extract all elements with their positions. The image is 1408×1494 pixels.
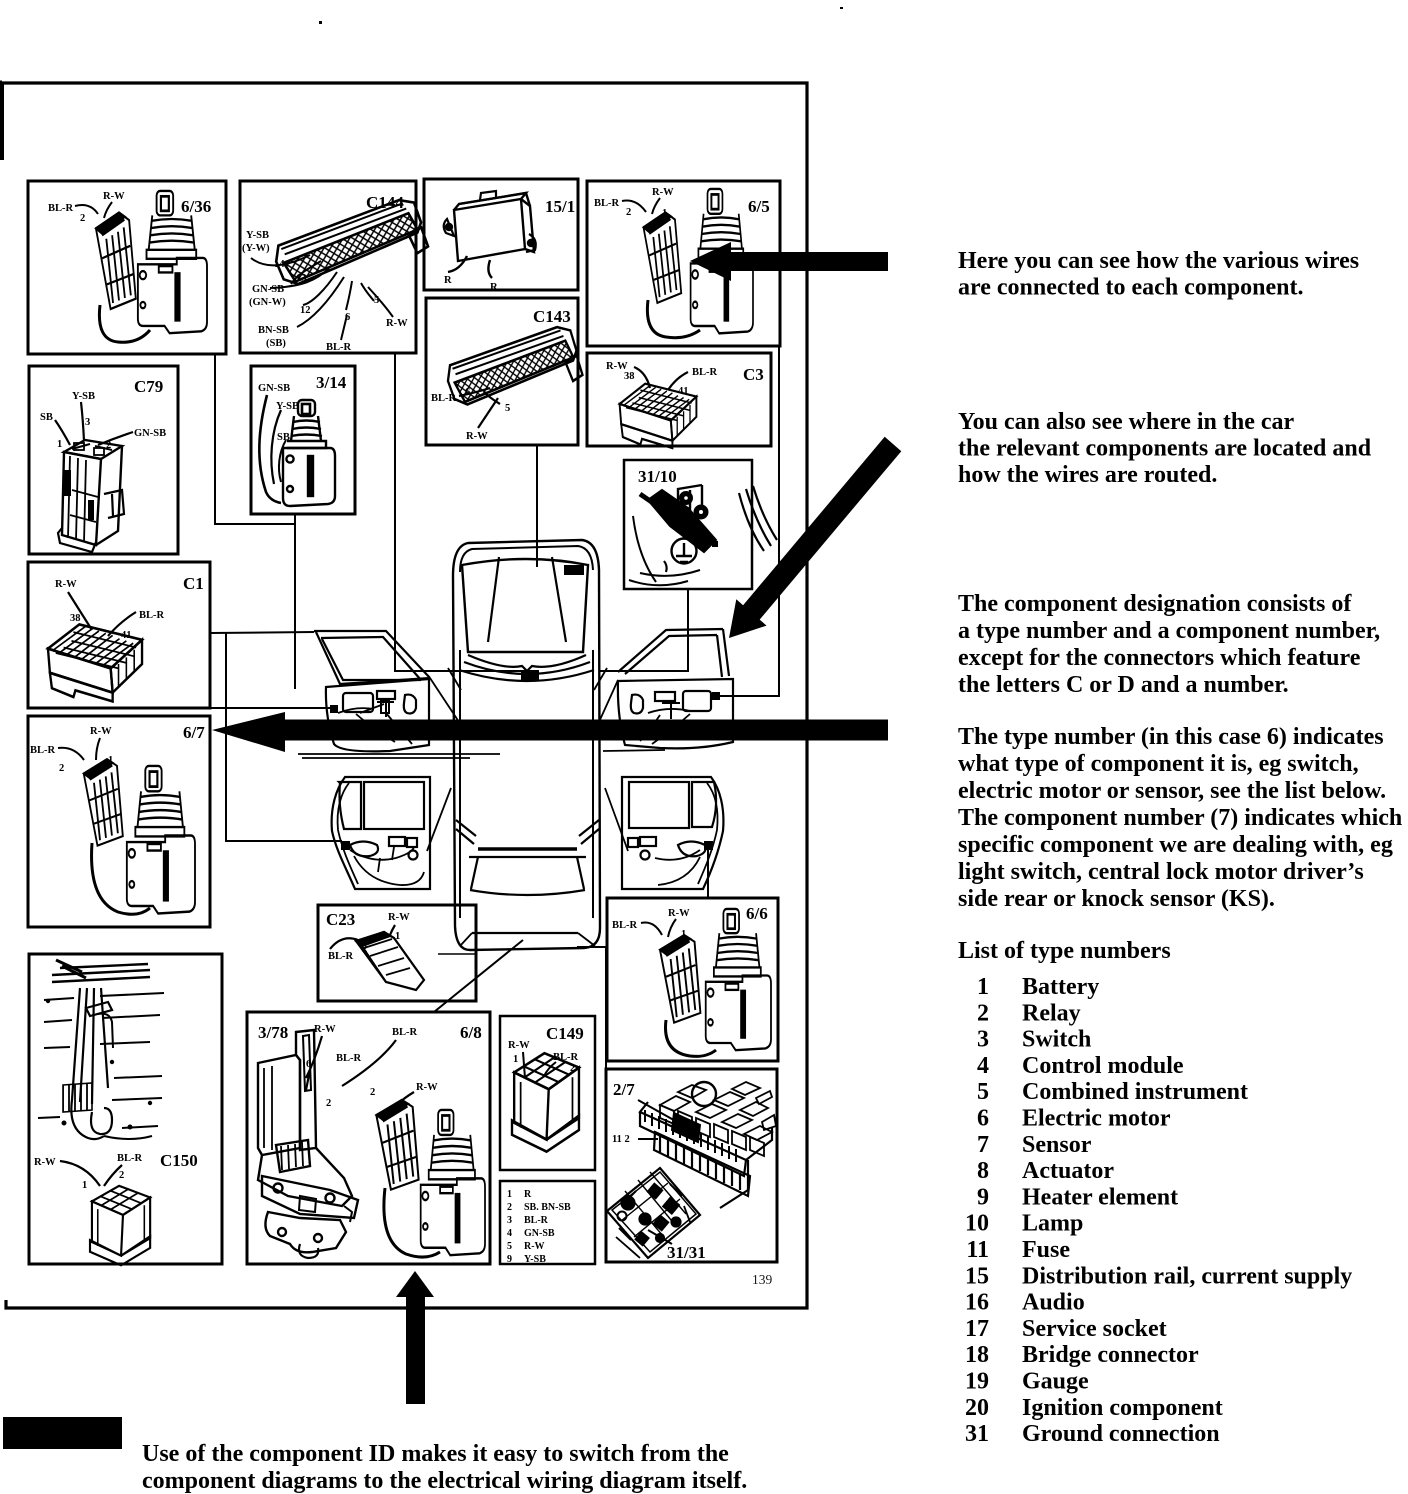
svg-text:C150: C150 <box>160 1151 198 1170</box>
svg-text:3: 3 <box>977 1027 989 1053</box>
svg-text:17: 17 <box>965 1316 989 1342</box>
svg-text:BN-SB: BN-SB <box>258 325 289 336</box>
svg-text:5: 5 <box>507 1241 512 1252</box>
svg-text:Y-SB: Y-SB <box>246 230 269 241</box>
svg-text:38: 38 <box>70 613 81 624</box>
svg-text:BL-R: BL-R <box>117 1153 143 1164</box>
svg-text:1: 1 <box>977 974 989 1000</box>
svg-text:2: 2 <box>362 944 367 955</box>
svg-text:what type of component it is,: what type of component it is, eg switch, <box>958 751 1359 777</box>
svg-text:4: 4 <box>977 1053 989 1079</box>
svg-text:41: 41 <box>678 386 689 397</box>
svg-text:SB: SB <box>277 432 290 443</box>
svg-text:The component designation cons: The component designation consists of <box>958 591 1352 617</box>
svg-text:139: 139 <box>752 1272 773 1287</box>
svg-text:Ignition component: Ignition component <box>1022 1395 1223 1421</box>
svg-text:6/8: 6/8 <box>460 1023 482 1042</box>
svg-text:1: 1 <box>117 211 122 222</box>
svg-text:side rear or knock sensor (KS): side rear or knock sensor (KS). <box>958 886 1275 912</box>
svg-text:Here you can see how the vario: Here you can see how the various wires <box>958 248 1359 274</box>
svg-text:1: 1 <box>82 1180 87 1191</box>
svg-text:2: 2 <box>119 1170 124 1181</box>
svg-text:C3: C3 <box>743 365 764 384</box>
svg-text:Sensor: Sensor <box>1022 1132 1092 1158</box>
svg-text:Y-SB: Y-SB <box>276 401 299 412</box>
svg-text:1: 1 <box>513 1054 518 1065</box>
svg-text:BL-R: BL-R <box>612 920 638 931</box>
svg-text:2: 2 <box>977 1000 989 1026</box>
svg-text:6: 6 <box>465 387 470 398</box>
svg-text:a type number and a component: a type number and a component number, <box>958 618 1380 644</box>
svg-text:2: 2 <box>326 1098 331 1109</box>
svg-text:how the wires are routed.: how the wires are routed. <box>958 462 1217 488</box>
svg-text:2/7: 2/7 <box>613 1080 635 1099</box>
svg-text:R: R <box>444 275 452 286</box>
svg-text:Combined instrument: Combined instrument <box>1022 1079 1248 1105</box>
svg-text:SB. BN-SB: SB. BN-SB <box>524 1202 571 1213</box>
svg-text:BL-R: BL-R <box>524 1215 549 1226</box>
svg-text:11 2: 11 2 <box>612 1134 630 1145</box>
svg-text:6/7: 6/7 <box>183 723 205 742</box>
svg-text:8: 8 <box>977 1158 989 1184</box>
svg-text:1: 1 <box>662 208 667 219</box>
svg-text:5: 5 <box>505 403 510 414</box>
svg-text:3: 3 <box>85 417 90 428</box>
svg-text:R-W: R-W <box>524 1241 545 1252</box>
svg-text:2: 2 <box>507 1202 512 1213</box>
svg-text:R-W: R-W <box>416 1082 438 1093</box>
svg-text:SB: SB <box>40 412 53 423</box>
svg-text:Battery: Battery <box>1022 974 1099 1000</box>
svg-text:Switch: Switch <box>1022 1027 1091 1053</box>
svg-text:18: 18 <box>965 1342 989 1368</box>
svg-text:Actuator: Actuator <box>1022 1158 1114 1184</box>
svg-text:11: 11 <box>966 1237 989 1263</box>
svg-text:C149: C149 <box>546 1024 584 1043</box>
svg-text:R-W: R-W <box>34 1157 56 1168</box>
svg-text:component diagrams to the elec: component diagrams to the electrical wir… <box>142 1468 747 1494</box>
svg-text:Gauge: Gauge <box>1022 1369 1089 1395</box>
svg-text:BL-R: BL-R <box>392 1027 418 1038</box>
svg-text:light switch, central lock mot: light switch, central lock motor driver’… <box>958 859 1364 885</box>
svg-text:List of type numbers: List of type numbers <box>958 938 1171 964</box>
svg-text:R-W: R-W <box>388 912 410 923</box>
svg-text:C23: C23 <box>326 910 355 929</box>
svg-text:9: 9 <box>977 1184 989 1210</box>
svg-text:Audio: Audio <box>1022 1290 1085 1316</box>
svg-text:R-W: R-W <box>386 318 408 329</box>
svg-text:BL-R: BL-R <box>431 393 457 404</box>
svg-text:3/78: 3/78 <box>258 1023 288 1042</box>
svg-text:BL-R: BL-R <box>594 198 620 209</box>
svg-text:Relay: Relay <box>1022 1000 1081 1026</box>
svg-text:except for the connectors whic: except for the connectors which feature <box>958 645 1361 671</box>
svg-text:C143: C143 <box>533 307 571 326</box>
svg-text:BL-R: BL-R <box>328 951 354 962</box>
svg-text:2: 2 <box>59 763 64 774</box>
svg-text:2: 2 <box>370 1087 375 1098</box>
svg-text:6: 6 <box>977 1106 989 1132</box>
svg-text:You can also see where in the: You can also see where in the car <box>958 409 1295 435</box>
svg-text:R: R <box>524 1189 532 1200</box>
svg-text:16: 16 <box>965 1290 989 1316</box>
svg-text:Lamp: Lamp <box>1022 1211 1083 1237</box>
svg-text:Bridge connector: Bridge connector <box>1022 1342 1199 1368</box>
svg-text:The type number (in this case: The type number (in this case 6) indicat… <box>958 724 1384 750</box>
svg-text:2: 2 <box>80 213 85 224</box>
svg-text:R-W: R-W <box>652 187 674 198</box>
svg-text:7: 7 <box>977 1132 989 1158</box>
svg-text:4: 4 <box>507 1228 512 1239</box>
svg-text:the letters C or D and a numbe: the letters C or D and a number. <box>958 672 1289 698</box>
svg-text:R-W: R-W <box>314 1024 336 1035</box>
svg-text:1: 1 <box>395 931 400 942</box>
svg-text:GN-SB: GN-SB <box>524 1228 555 1239</box>
svg-text:the relevant components are lo: the relevant components are located and <box>958 436 1372 462</box>
svg-text:R-W: R-W <box>668 908 690 919</box>
svg-text:electric motor or sensor, see: electric motor or sensor, see the list b… <box>958 778 1386 804</box>
svg-text:Y-SB: Y-SB <box>524 1254 546 1265</box>
svg-text:1: 1 <box>57 439 62 450</box>
svg-text:Use of the component ID makes: Use of the component ID makes it easy to… <box>142 1441 729 1467</box>
svg-text:19: 19 <box>965 1369 989 1395</box>
svg-text:BL-R: BL-R <box>30 745 56 756</box>
svg-text:GN-SB: GN-SB <box>252 284 284 295</box>
svg-text:6/6: 6/6 <box>746 904 768 923</box>
svg-text:6/5: 6/5 <box>748 197 770 216</box>
svg-text:15/1: 15/1 <box>545 197 575 216</box>
svg-text:(Y-W): (Y-W) <box>242 243 270 254</box>
svg-text:31/31: 31/31 <box>667 1243 706 1262</box>
svg-text:Ground connection: Ground connection <box>1022 1421 1220 1447</box>
svg-text:Fuse: Fuse <box>1022 1237 1070 1263</box>
svg-text:41: 41 <box>121 630 132 641</box>
svg-text:6/36: 6/36 <box>181 197 211 216</box>
svg-text:31/10: 31/10 <box>638 467 677 486</box>
svg-text:Control module: Control module <box>1022 1053 1184 1079</box>
svg-text:C144: C144 <box>366 193 404 212</box>
svg-text:Service socket: Service socket <box>1022 1316 1167 1342</box>
svg-text:Electric motor: Electric motor <box>1022 1106 1171 1132</box>
svg-text:3: 3 <box>507 1215 512 1226</box>
svg-text:(GN-W): (GN-W) <box>249 297 286 308</box>
svg-text:R-W: R-W <box>90 726 112 737</box>
svg-text:31: 31 <box>965 1421 989 1447</box>
svg-text:3/14: 3/14 <box>316 373 347 392</box>
svg-text:(SB): (SB) <box>266 338 286 349</box>
svg-text:The component number (7) indic: The component number (7) indicates which <box>958 805 1402 831</box>
svg-text:BL-R: BL-R <box>326 342 352 353</box>
svg-text:12: 12 <box>300 305 311 316</box>
svg-text:specific component we are deal: specific component we are dealing with, … <box>958 832 1393 858</box>
svg-text:38: 38 <box>624 371 635 382</box>
svg-text:C79: C79 <box>134 377 163 396</box>
svg-text:GN-SB: GN-SB <box>258 383 290 394</box>
svg-text:9: 9 <box>507 1254 512 1265</box>
svg-text:1: 1 <box>507 1189 512 1200</box>
svg-text:R: R <box>490 282 498 293</box>
svg-text:10: 10 <box>965 1211 989 1237</box>
svg-text:1: 1 <box>108 755 113 766</box>
svg-text:R-W: R-W <box>508 1040 530 1051</box>
svg-text:20: 20 <box>965 1395 989 1421</box>
svg-text:R-W: R-W <box>103 191 125 202</box>
svg-text:BL-R: BL-R <box>692 367 718 378</box>
svg-text:GN-SB: GN-SB <box>134 428 166 439</box>
svg-text:2: 2 <box>106 440 111 451</box>
svg-text:Distribution rail, current sup: Distribution rail, current supply <box>1022 1263 1352 1289</box>
svg-text:1: 1 <box>681 929 686 940</box>
svg-text:BL-R: BL-R <box>139 610 165 621</box>
svg-text:2: 2 <box>570 1063 575 1074</box>
svg-text:are connected to each componen: are connected to each component. <box>958 275 1304 301</box>
svg-text:15: 15 <box>965 1263 989 1289</box>
svg-text:BL-R: BL-R <box>336 1053 362 1064</box>
svg-text:C1: C1 <box>183 574 204 593</box>
svg-text:Y-SB: Y-SB <box>72 391 95 402</box>
svg-text:R-W: R-W <box>55 579 77 590</box>
svg-text:2: 2 <box>626 207 631 218</box>
svg-text:Heater element: Heater element <box>1022 1184 1178 1210</box>
svg-text:5: 5 <box>977 1079 989 1105</box>
svg-text:BL-R: BL-R <box>553 1052 579 1063</box>
svg-text:R-W: R-W <box>466 431 488 442</box>
svg-text:BL-R: BL-R <box>48 203 74 214</box>
